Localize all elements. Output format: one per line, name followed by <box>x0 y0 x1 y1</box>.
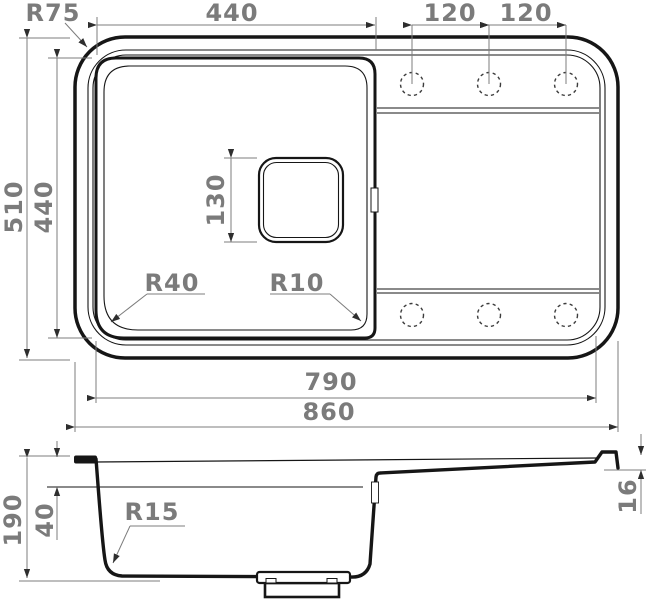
dim-bottom-radius-label: R15 <box>125 500 180 524</box>
dim-overall-length-label: 860 <box>302 400 355 424</box>
bowl-edge <box>96 58 375 338</box>
side-view-dimensions <box>19 434 646 581</box>
dim-bowl-width-label: 440 <box>205 1 258 25</box>
dim-rim-height-label: 40 <box>33 502 57 537</box>
drain-fitting <box>257 572 350 597</box>
dim-bowl-radius-right-label: R10 <box>270 271 325 295</box>
overflow-gap <box>372 482 379 503</box>
drainboard-slope-lines <box>377 108 599 293</box>
dim-inner-length-label: 790 <box>304 370 357 394</box>
rim-top-line <box>95 458 597 462</box>
dim-edge-thickness-label: 16 <box>616 478 640 513</box>
dim-overall-depth-label: 510 <box>2 180 26 233</box>
drawing-linework <box>0 0 647 600</box>
dim-hole-spacing-left-label: 120 <box>423 1 476 25</box>
top-view <box>75 37 618 358</box>
dim-drain-size-label: 130 <box>204 173 228 226</box>
overflow-notch <box>371 188 378 212</box>
left-rim-bar <box>74 456 97 464</box>
dim-overall-height-label: 190 <box>1 493 25 546</box>
dim-bowl-depth-label: 440 <box>32 180 56 233</box>
dim-bowl-radius-left-label: R40 <box>145 271 200 295</box>
faucet-holes <box>401 73 578 327</box>
sink-technical-drawing: R75 440 120 120 510 440 130 R40 R10 790 … <box>0 0 647 600</box>
dim-hole-spacing-right-label: 120 <box>499 1 552 25</box>
dim-corner-radius-label: R75 <box>26 1 81 25</box>
